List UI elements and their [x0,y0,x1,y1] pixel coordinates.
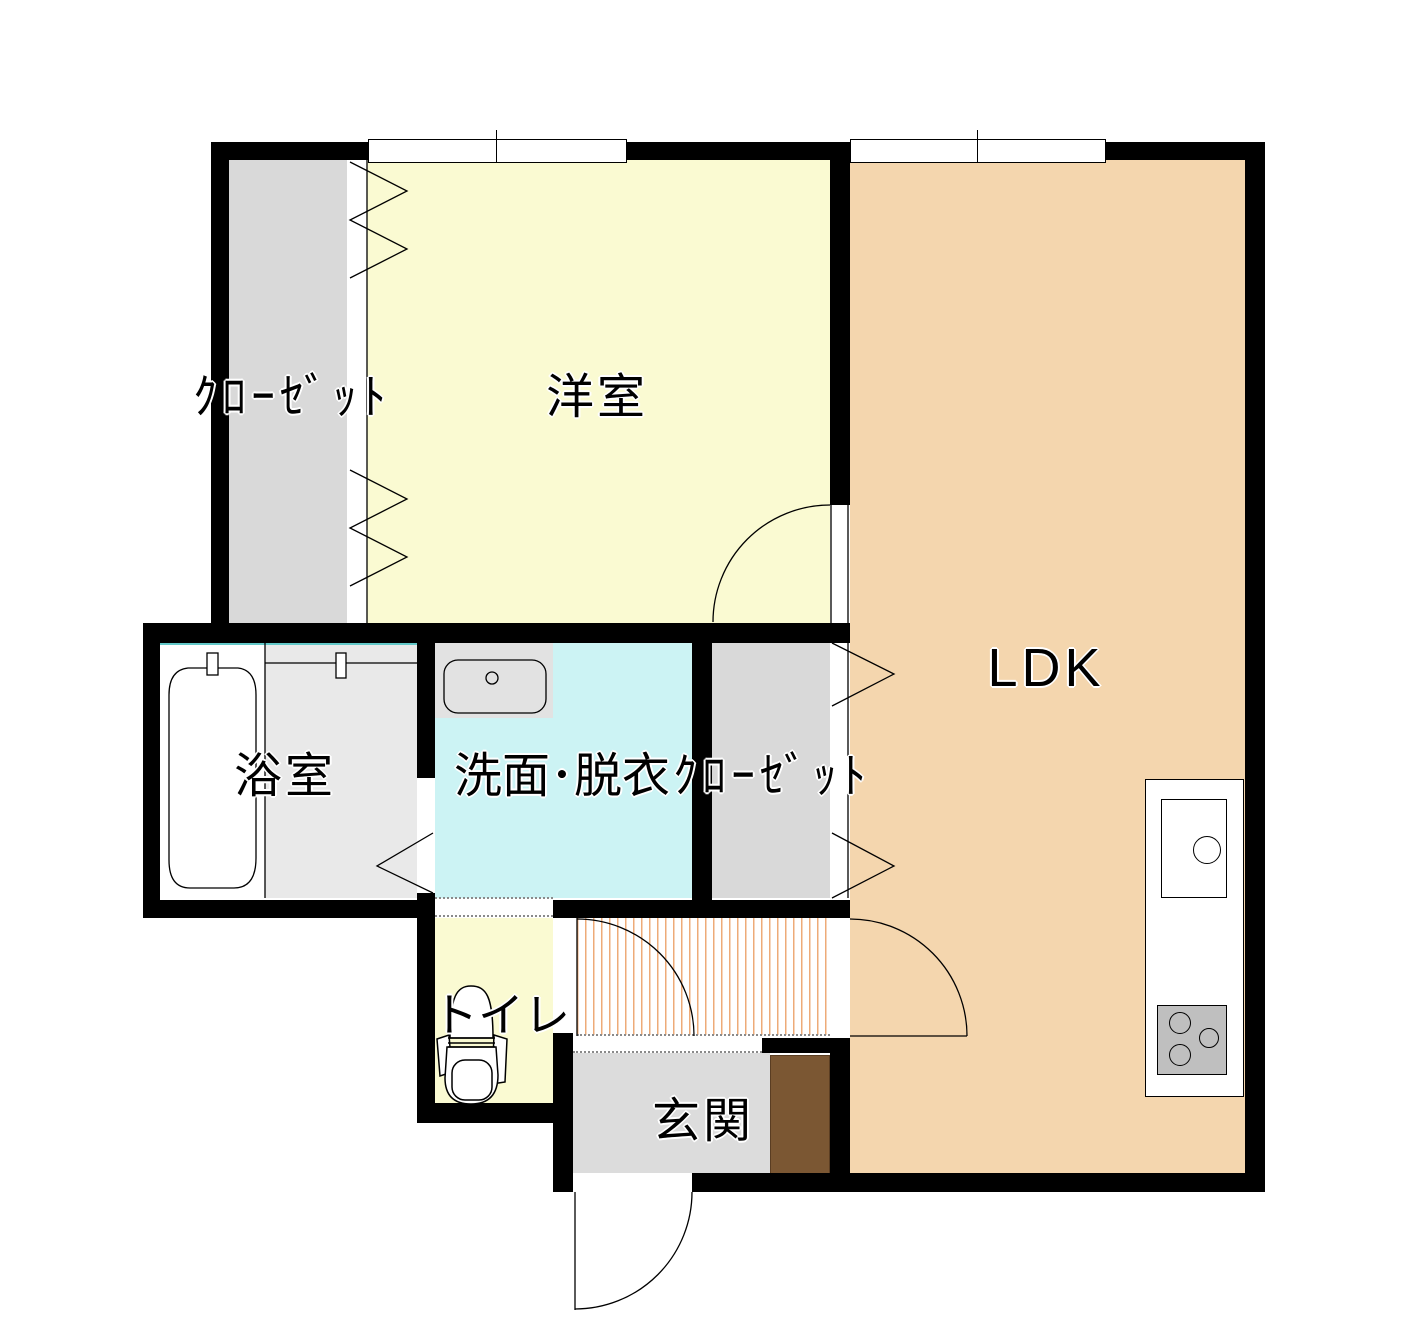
bath-faucet [336,653,346,678]
door-swing-arc [575,1192,692,1309]
room-label-toilet: トイレ [432,979,570,1045]
room-label-washroom: 洗面･脱衣 [454,736,670,806]
room-label-closet-upper: ｸﾛｰｾﾞｯﾄ [193,357,391,427]
folding-door-zigzag [832,643,894,706]
floor-plan-canvas: ｸﾛｰｾﾞｯﾄ 洋室 LDK 浴室 洗面･脱衣 ｸﾛｰｾﾞｯﾄ トイレ 玄関 [0,0,1403,1334]
room-label-bathroom: 浴室 [234,736,336,806]
door-leaf [831,505,848,623]
folding-door-zigzag [350,470,407,586]
bath-faucet [207,653,218,675]
room-label-closet-middle: ｸﾛｰｾﾞｯﾄ [673,736,871,806]
wash-basin [444,660,546,713]
folding-door-zigzag [377,833,433,893]
room-label-western-room: 洋室 [546,357,648,427]
door-swing-arc [850,919,967,1036]
room-label-entrance: 玄関 [652,1081,754,1151]
folding-door-zigzag [350,162,407,278]
door-swing-arc [713,505,830,622]
wash-basin-faucet [486,672,498,684]
folding-door-zigzag [832,833,894,898]
door-swing-arc [577,919,694,1036]
room-label-ldk: LDK [987,637,1104,699]
